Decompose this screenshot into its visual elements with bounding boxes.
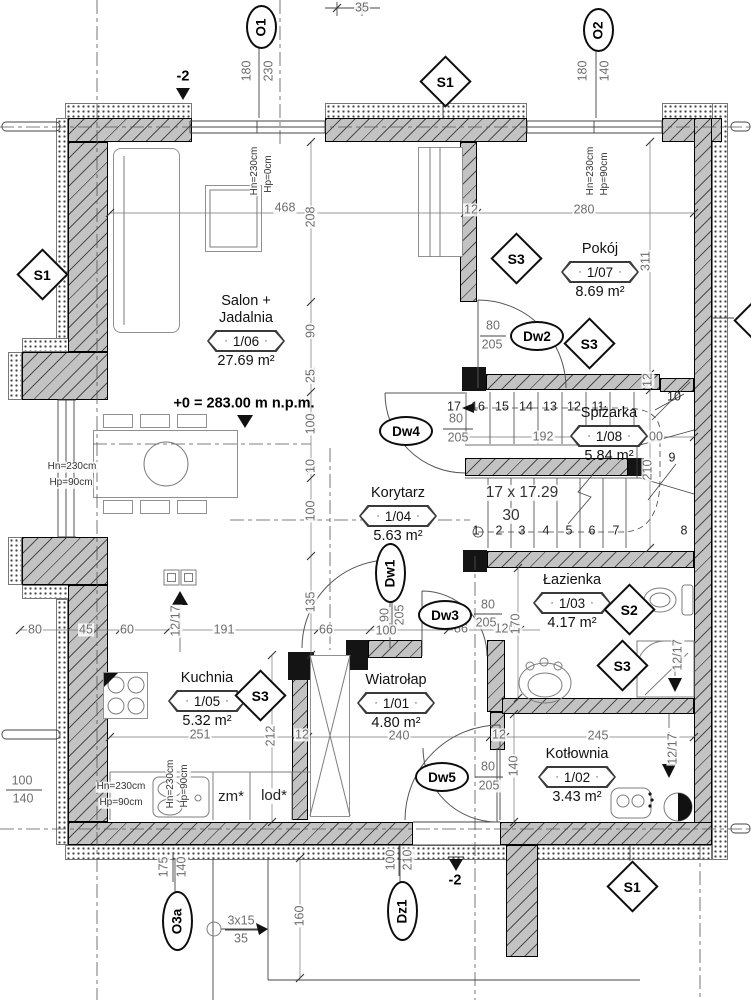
section-marker-label: S3 [613,657,630,673]
dim-label: 311 [639,250,652,272]
flue [164,570,179,585]
side-table-inner [210,190,257,247]
dim-label: 140 [507,755,520,778]
room-number: 1/04 [385,509,411,524]
dining-table-top [144,442,188,486]
dim-label: -2 [448,873,463,888]
dim-label: 45 [78,623,94,636]
dim-label: Hn=230cm [250,146,261,197]
dim-label: 140 [12,792,35,805]
flue [181,570,196,585]
room-name: Kuchnia [168,670,246,687]
opening-marker-o1: O1 [246,5,277,49]
dim-label: 191 [213,623,236,636]
dim-label: Hp=90cm [600,151,611,196]
dim-label: 468 [274,201,297,214]
dim-label: 80 [448,412,464,425]
stove-corner [104,673,118,687]
room-name: Korytarz [359,485,437,502]
room-name: Wiatrołap [357,672,435,689]
room-area: 4.17 m² [533,615,611,632]
stair-step-number: 10 [666,390,682,403]
opening-marker-label: Dw4 [392,424,420,439]
room-number: 1/06 [233,334,259,349]
opening-marker-label: Dz1 [394,899,409,923]
dim-label: 100 [375,624,398,637]
toilet-tank [682,585,693,615]
dim-label: 80 [485,319,501,332]
room-name: Spiżarka [570,405,648,422]
opening-marker-label: Dw5 [428,770,456,785]
opening-marker-dw4: Dw4 [379,416,433,446]
room-label-spizarka: Spiżarka·1/08·5.84 m² [570,405,648,465]
step-start-marker [207,922,221,936]
dim-label: 205 [475,616,498,629]
dim-label: 100 [11,774,34,787]
door-swings [302,300,566,822]
room-label-kotlownia: Kotłownia·1/02·3.43 m² [538,746,616,806]
dim-label: 60 [119,623,135,636]
opening-marker-dw5: Dw5 [415,762,469,792]
section-marker-label: S3 [251,687,268,703]
dim-label: lod* [260,788,288,804]
dim-label: 00 [648,430,664,443]
dim-label: 12 [491,728,507,741]
burner [108,698,124,714]
stair-step-number: 9 [668,451,677,464]
dim-label: 205 [478,779,501,792]
stair-step-number: 2 [495,524,504,537]
dim-label: Hn=230cm [166,759,177,810]
dim-label: 208 [304,206,317,229]
floor-drain-half [678,793,692,821]
room-number: 1/05 [194,694,220,709]
dim-label: 35 [354,1,370,14]
dim-label: Hn=230cm [586,146,597,197]
stair-step-number: 8 [680,524,689,537]
opening-marker-label: O3a [170,908,185,934]
level-marker-triangle [237,415,253,428]
vent-triangle [172,591,188,605]
opening-marker-label: O1 [253,18,268,36]
dim-label: 3x15 [226,914,255,927]
section-marker-label: S1 [436,73,453,89]
steps-arrow [256,923,268,935]
room-number-badge: ·1/04· [359,505,437,527]
dim-label: 205 [447,431,470,444]
dim-label: 66 [318,623,334,636]
dim-label: Hn=230cm [96,782,147,793]
room-number: 1/07 [587,265,613,280]
dim-label: 80 [480,760,496,773]
dim-label: -2 [176,69,191,84]
room-area: 3.43 m² [538,789,616,806]
burner [128,698,144,714]
dim-label: 90 [378,607,391,623]
room-area: 5.32 m² [168,713,246,730]
room-area: 27.69 m² [207,353,285,370]
floor-plan: 35-2180230180140Hn=230cmHp=0cmHn=230cmHp… [0,0,751,1000]
room-label-kuchnia: Kuchnia·1/05·5.32 m² [168,670,246,730]
dim-label: 80 [480,598,496,611]
dim-label: 80 [27,623,43,636]
room-label-wiatrolap: Wiatrołap·1/01·4.80 m² [357,672,435,732]
dim-label: 12/17 [671,638,684,671]
dim-label: 175 [157,856,170,879]
room-number-badge: ·1/07· [561,261,639,283]
opening-marker-label: Dw2 [523,329,551,344]
room-label-korytarz: Korytarz·1/04·5.63 m² [359,485,437,545]
room-number-badge: ·1/02· [538,766,616,788]
opening-marker-dw1: Dw1 [375,543,406,603]
stair-step-number: 7 [612,524,621,537]
wardrobe-doors [430,147,440,257]
section-marker-label: S1 [33,266,50,282]
opening-marker-dz1: Dz1 [387,881,418,941]
dim-label: 180 [240,60,253,83]
room-label-lazienka: Łazienka·1/03·4.17 m² [533,572,611,632]
dim-label: 12 [463,203,479,216]
room-area: 8.69 m² [561,284,639,301]
dim-label: Hp=90cm [98,798,143,809]
dim-label: Hn=230cm [47,462,98,473]
dim-label: 160 [293,905,306,928]
room-number: 1/08 [596,429,622,444]
stair-step-number: 6 [588,524,597,537]
dim-label: 12 [294,728,310,741]
room-name: Kotłownia [538,746,616,763]
dim-label: 100 [384,849,397,872]
room-area: 5.84 m² [570,448,648,465]
stair-step-number: 15 [494,400,510,413]
stair-step-number: 16 [470,400,486,413]
room-number: 1/03 [559,596,585,611]
dim-label: 10 [304,458,317,474]
section-marker-label: S1 [623,878,640,894]
section-marker-label: S3 [580,335,597,351]
opening-marker-label: Dw3 [431,608,459,623]
room-label-salon: Salon +Jadalnia·1/06·27.69 m² [207,293,285,370]
dim-label: 17 x 17.29 [485,485,559,501]
dim-label: 100 [304,413,317,436]
room-area: 5.63 m² [359,528,437,545]
dim-label: 210 [401,849,414,872]
room-name: Pokój [561,241,639,258]
dim-label: 212 [264,725,277,748]
room-number-badge: ·1/03· [533,592,611,614]
dim-label: Hp=90cm [48,478,93,489]
dim-label: 251 [189,728,212,741]
dim-label: 135 [304,591,317,614]
room-name: Jadalnia [207,310,285,327]
room-name: Salon + [207,293,285,310]
room-number-badge: ·1/05· [168,690,246,712]
stair-step-number: 3 [518,524,527,537]
burner [128,677,144,693]
room-number-badge: ·1/01· [357,692,435,714]
room-number: 1/02 [564,770,590,785]
dim-label: Hp=90cm [180,763,191,808]
dim-label: 30 [501,508,520,524]
section-marker-label: S3 [507,250,524,266]
vent-triangle [662,764,676,778]
room-name: Łazienka [533,572,611,589]
dim-label: 280 [573,203,596,216]
dim-label: 192 [532,430,555,443]
room-number-badge: ·1/06· [207,330,285,352]
room-label-pokoj: Pokój·1/07·8.69 m² [561,241,639,301]
stair-step-number: 1 [472,524,481,537]
dim-label: 100 [304,500,317,523]
opening-marker-o2: O2 [583,8,614,52]
room-area: 4.80 m² [357,715,435,732]
dim-label: 245 [587,729,610,742]
opening-marker-label: O2 [590,21,605,39]
dim-label: 90 [304,323,317,339]
opening-marker-dw3: Dw3 [418,600,472,630]
dim-label: +0 = 283.00 m n.p.m. [172,396,315,411]
opening-marker-o3a: O3a [162,891,193,951]
stair-step-number: 4 [542,524,551,537]
room-number: 1/01 [383,696,409,711]
dim-label: Hp=0cm [264,154,275,194]
dim-label: 12/17 [666,732,679,765]
closet-cross [310,655,350,816]
dim-label: 12/17 [169,604,182,637]
dim-label: 170 [509,613,522,636]
dim-label: 205 [481,338,504,351]
dim-label: 25 [304,368,317,384]
dim-label: 180 [576,60,589,83]
dim-label: zm* [217,789,245,805]
stair-step-number: 14 [518,400,534,413]
level-marker-triangle [176,88,190,100]
dim-label: 35 [233,932,249,945]
dim-label: 140 [598,60,611,83]
room-number-badge: ·1/08· [570,425,648,447]
opening-marker-label: Dw1 [383,559,398,587]
vent-triangle [668,678,682,692]
opening-marker-dw2: Dw2 [510,321,564,351]
level-marker-triangle [449,859,463,871]
dim-label: 230 [262,60,275,83]
section-marker-label: S2 [620,601,637,617]
dim-label: 140 [175,856,188,879]
stair-step-number: 5 [565,524,574,537]
stair-step-number: 13 [542,400,558,413]
stair-step-number: 17 [446,400,462,413]
dim-label: 12 [641,372,654,388]
